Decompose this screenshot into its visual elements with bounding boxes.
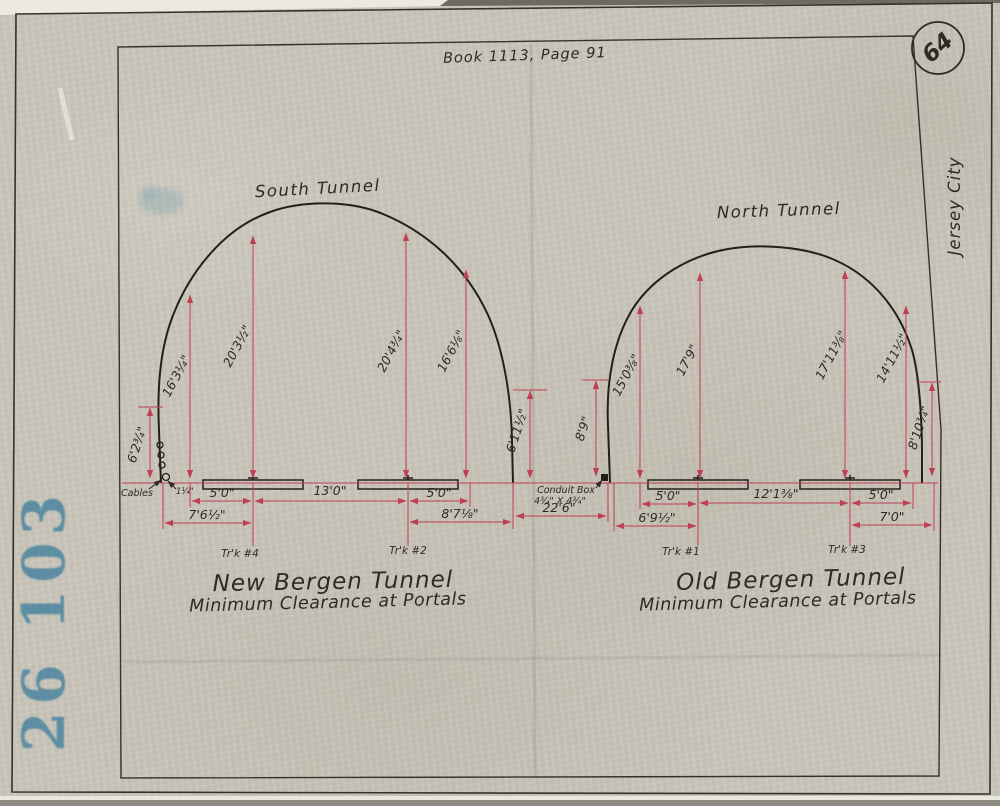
track-label-4: Tr'k #4 [221,548,259,560]
dim-north-offset-left: 6'9½" [638,510,675,525]
dim-north-offset-right: 7'0" [879,509,904,524]
north-tunnel-label: North Tunnel [717,199,842,222]
dim-south-offset-right: 8'7⅛" [441,506,478,521]
conduit-pointer [596,480,602,488]
dim-north-gauge-left: 5'0" [655,488,680,503]
south-tunnel-label: South Tunnel [254,176,381,202]
dim-south-h3: 20'4¾" [374,327,408,374]
north-tunnel-outline [608,246,922,483]
drawing-sheet: 64 Book 1113, Page 91 Jersey City 26 103 [0,0,1000,802]
book-reference: Book 1113, Page 91 [443,45,607,67]
cables-label: Cables [121,488,153,499]
conduit-box-symbol [601,474,608,481]
archive-stamp: 26 103 [10,488,78,752]
margin-label-jersey-city: Jersey City [945,157,964,259]
dim-south-h4: 16'6⅛" [434,327,468,374]
dim-north-h4: 14'11½" [873,331,911,385]
track-label-1: Tr'k #1 [662,546,700,558]
dim-south-wall-right: 6'11½" [503,407,531,455]
dim-south-gauge-left: 5'0" [209,485,234,500]
paper-edges [0,0,1000,802]
drawing-canvas: 64 Book 1113, Page 91 Jersey City 26 103 [0,0,1000,802]
dim-south-h1: 16'3¼" [159,352,193,399]
track-label-2: Tr'k #2 [389,545,427,557]
dim-north-h3: 17'11⅜" [812,328,850,382]
dim-south-center: 13'0" [313,483,346,498]
cable-symbols [157,442,170,481]
ink-smudge [139,186,184,214]
sheet-number: 64 [917,28,958,69]
dim-north-center: 12'1⅜" [753,486,798,501]
dim-south-gauge-right: 5'0" [426,485,451,500]
dim-south-h2: 20'3½" [220,322,254,369]
dim-south-offset-left: 7'6½" [188,507,225,522]
dim-south-wall-left: 6'2¾" [124,425,150,465]
conduit-size-label: 4¾" X 4¾" [534,496,586,507]
dim-north-h2: 17'9" [673,342,702,378]
dim-north-gauge-right: 5'0" [868,487,893,502]
dim-north-wall-right: 8'10¾" [905,404,933,452]
track-label-3: Tr'k #3 [828,544,866,556]
cable-offset-label: 1¼" [176,487,194,497]
dim-conduit-height: 8'9" [572,414,594,443]
cable-offset-pointer [168,481,176,489]
conduit-box-label: Conduit Box [537,485,595,496]
paper-creases [60,45,938,778]
